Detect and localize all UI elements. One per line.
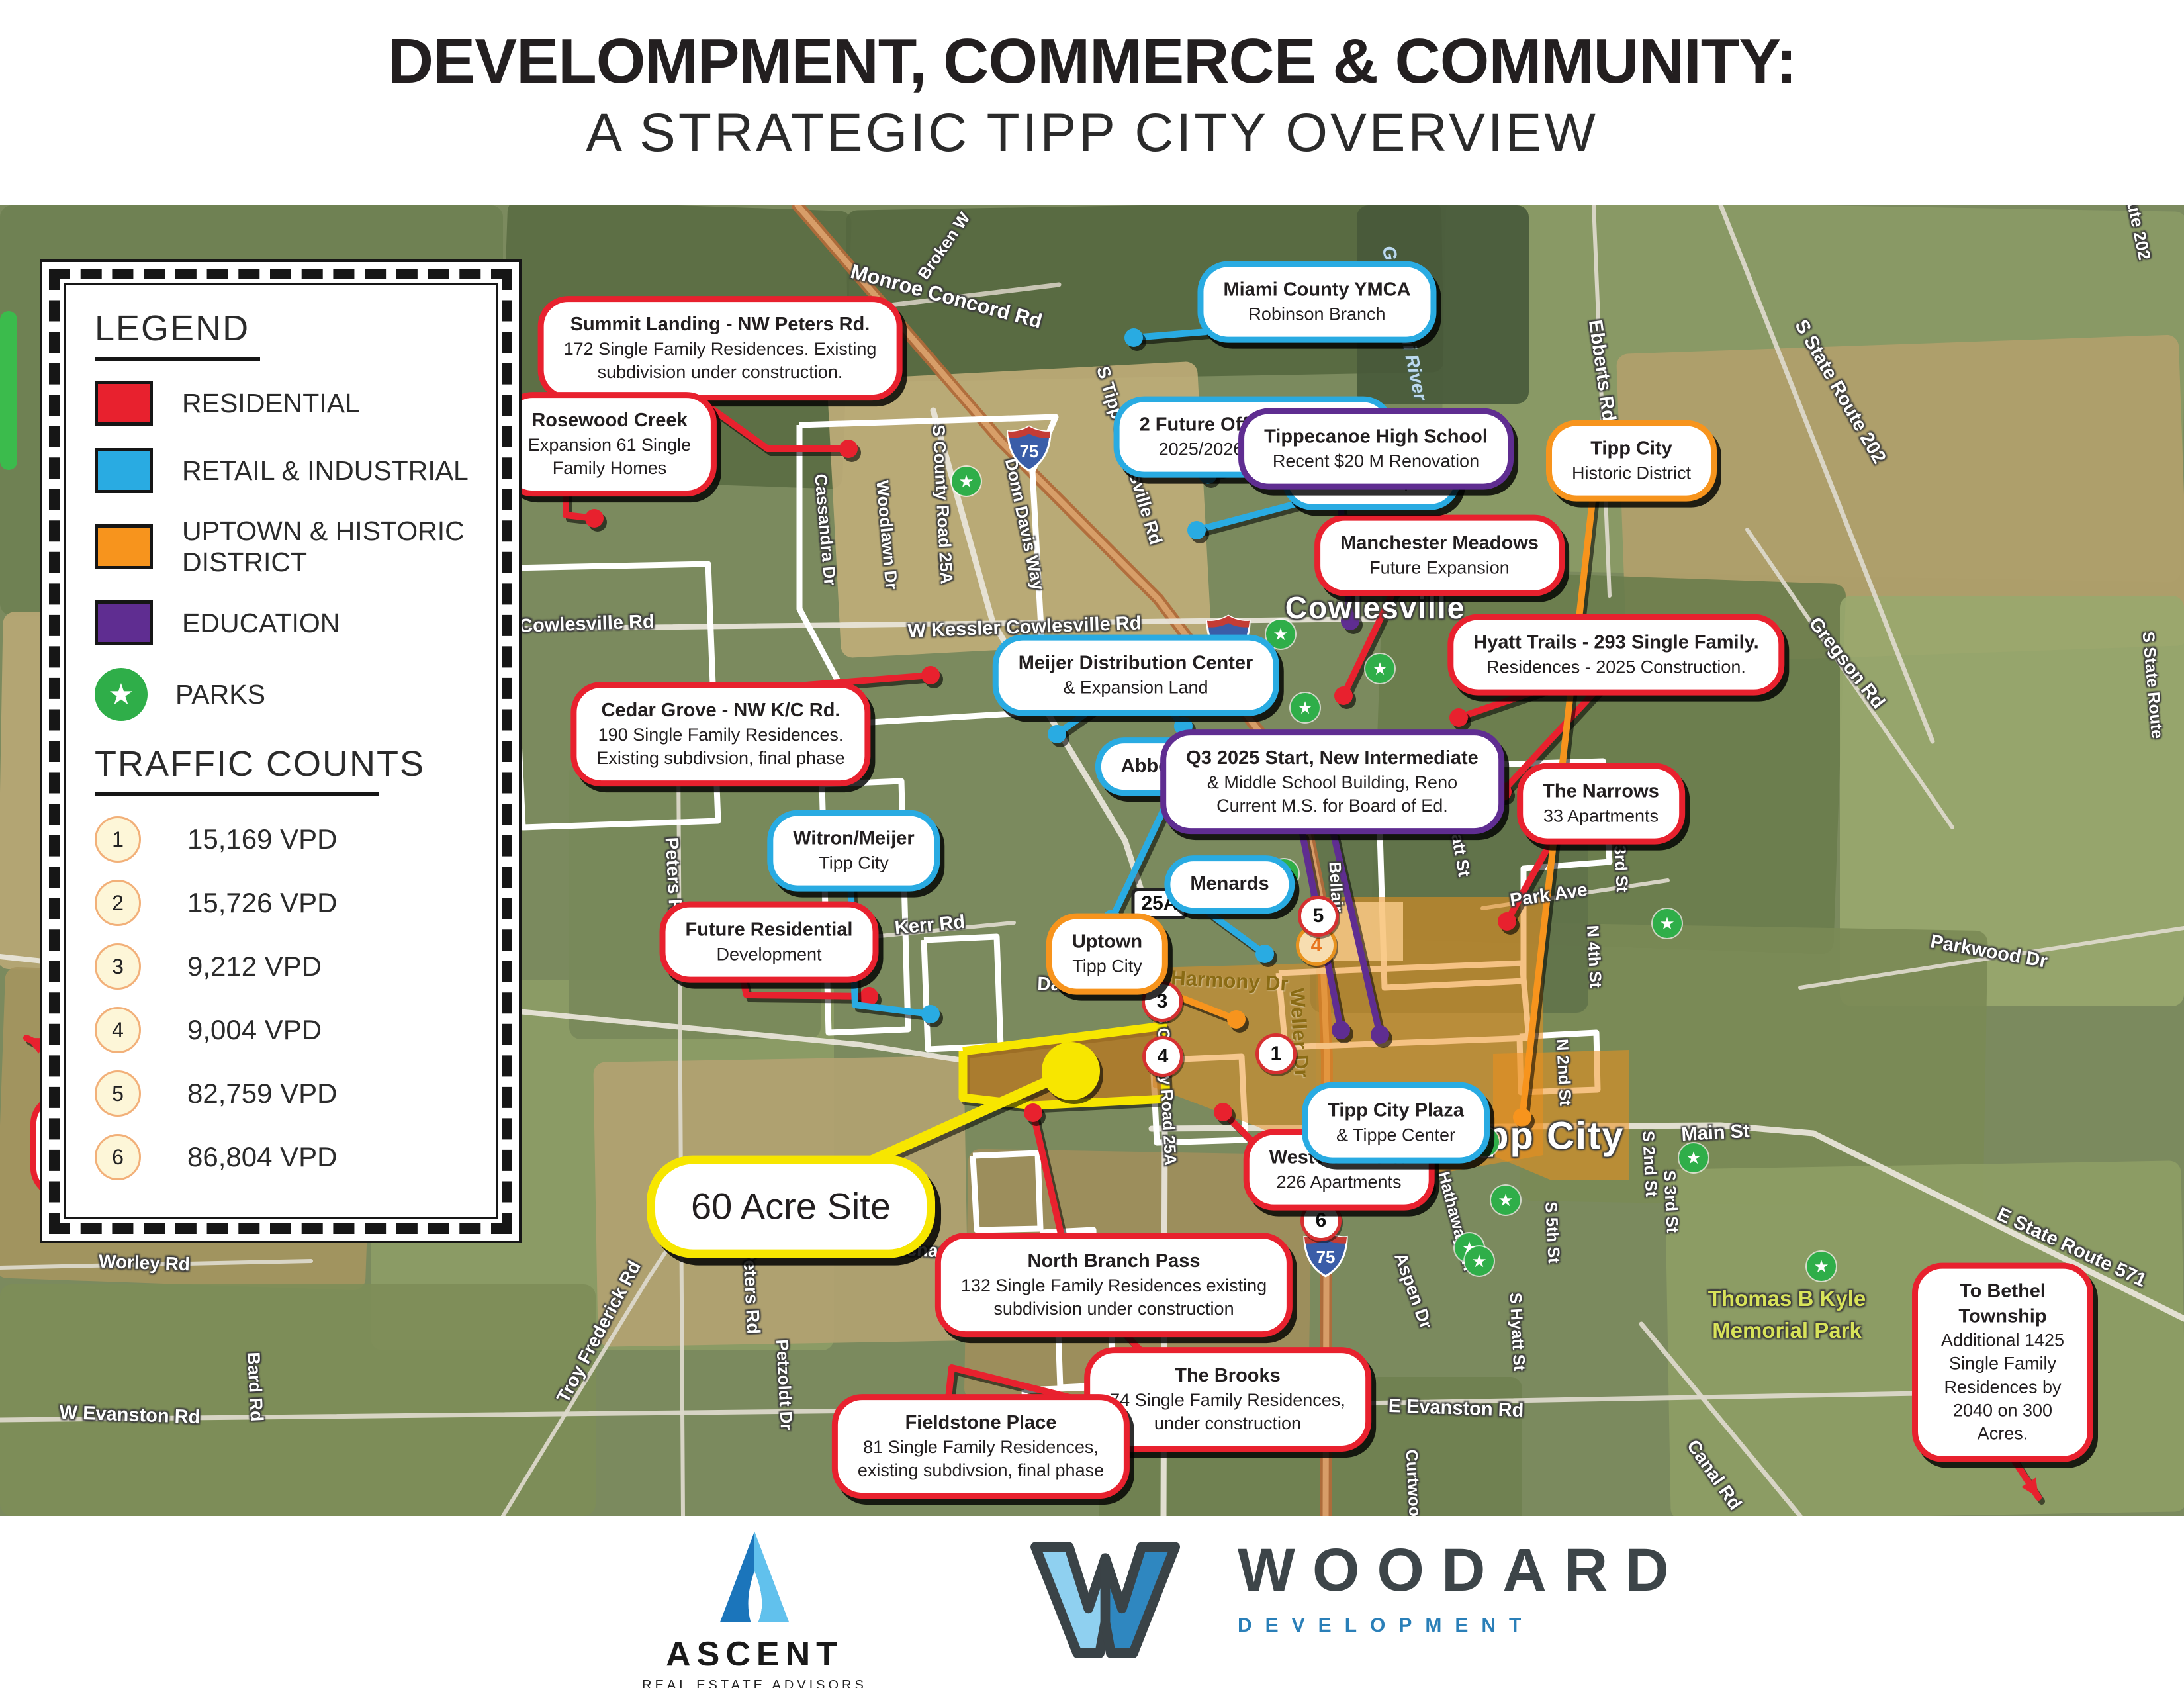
map-label: Worley Rd bbox=[99, 1251, 191, 1276]
legend-title: LEGEND bbox=[95, 308, 469, 349]
map-label: S 5th St bbox=[1541, 1201, 1563, 1264]
park-star-icon: ★ bbox=[952, 467, 981, 496]
callout-witron-meijer: Witron/MeijerTipp City bbox=[767, 810, 940, 892]
page-title: DEVELOMPMENT, COMMERCE & COMMUNITY: bbox=[0, 25, 2184, 98]
legend-item-uptown-historic-district: UPTOWN & HISTORIC DISTRICT bbox=[95, 516, 469, 578]
traffic-count-number: 6 bbox=[95, 1134, 141, 1180]
legend-swatch bbox=[95, 448, 153, 493]
legend-dashed-frame: LEGEND RESIDENTIALRETAIL & INDUSTRIALUPT… bbox=[49, 269, 512, 1234]
traffic-count-number: 2 bbox=[95, 880, 141, 926]
legend-item-retail-industrial: RETAIL & INDUSTRIAL bbox=[95, 448, 469, 493]
interstate-75-shield: 75 bbox=[1005, 424, 1054, 477]
traffic-count-row-2: 215,726 VPD bbox=[95, 880, 469, 926]
park-star-icon: ★ bbox=[1465, 1246, 1494, 1276]
park-star-icon: ★ bbox=[1365, 654, 1394, 683]
traffic-marker-1: 1 bbox=[1255, 1033, 1297, 1074]
callout-manchester-meadows: Manchester MeadowsFuture Expansion bbox=[1314, 515, 1565, 596]
traffic-count-number: 5 bbox=[95, 1070, 141, 1117]
park-star-icon: ★ bbox=[1653, 909, 1682, 938]
map-label: Curtwood bbox=[1401, 1449, 1424, 1516]
callout-uptown-tipp-city: UptownTipp City bbox=[1046, 914, 1168, 995]
callout-bethel-township: To Bethel TownshipAdditional 1425 Single… bbox=[1912, 1263, 2093, 1462]
header: DEVELOMPMENT, COMMERCE & COMMUNITY: A ST… bbox=[0, 19, 2184, 164]
callout-the-narrows: The Narrows33 Apartments bbox=[1517, 763, 1685, 845]
page-subtitle: A STRATEGIC TIPP CITY OVERVIEW bbox=[0, 102, 2184, 164]
legend-item-education: EDUCATION bbox=[95, 600, 469, 645]
traffic-count-row-3: 39,212 VPD bbox=[95, 943, 469, 990]
traffic-count-value: 86,804 VPD bbox=[187, 1141, 338, 1173]
traffic-count-number: 3 bbox=[95, 943, 141, 990]
park-star-icon: ★ bbox=[1679, 1143, 1708, 1172]
callout-north-branch-pass: North Branch Pass132 Single Family Resid… bbox=[935, 1233, 1293, 1337]
traffic-count-row-6: 686,804 VPD bbox=[95, 1134, 469, 1180]
park-star-icon: ★ bbox=[1807, 1252, 1836, 1281]
woodard-tagline: DEVELOPMENT bbox=[1238, 1615, 1686, 1637]
map-label: S Hyatt St bbox=[1505, 1292, 1528, 1371]
traffic-count-row-5: 582,759 VPD bbox=[95, 1070, 469, 1117]
callout-meijer-distribution: Meijer Distribution Center& Expansion La… bbox=[993, 635, 1279, 716]
legend-item-residential: RESIDENTIAL bbox=[95, 381, 469, 426]
legend-swatch bbox=[95, 524, 153, 569]
woodard-logo: WOODARD DEVELOPMENT bbox=[1019, 1536, 1686, 1662]
callout-menards: Menards bbox=[1164, 855, 1295, 914]
callout-tippecanoe-hs: Tippecanoe High SchoolRecent $20 M Renov… bbox=[1238, 408, 1514, 490]
map-label: N 4th St bbox=[1582, 925, 1605, 988]
svg-text:75: 75 bbox=[1020, 443, 1039, 461]
map-label: S 3rd St bbox=[1659, 1170, 1682, 1233]
callout-rosewood-creek: Rosewood CreekExpansion 61 SingleFamily … bbox=[502, 392, 717, 496]
callout-hyatt-trails: Hyatt Trails - 293 Single Family.Residen… bbox=[1447, 614, 1784, 696]
traffic-rule bbox=[95, 792, 379, 796]
ascent-name: ASCENT bbox=[635, 1634, 874, 1674]
traffic-count-number: 4 bbox=[95, 1007, 141, 1053]
map-label: S 2nd St bbox=[1638, 1130, 1661, 1197]
legend-item-parks: ★PARKS bbox=[95, 668, 469, 721]
map-label: N 2nd St bbox=[1552, 1039, 1574, 1107]
legend-label: UPTOWN & HISTORIC DISTRICT bbox=[182, 516, 469, 578]
traffic-count-value: 9,004 VPD bbox=[187, 1014, 322, 1046]
parks-star-icon: ★ bbox=[95, 668, 148, 721]
callout-tipp-city-plaza: Tipp City Plaza& Tippe Center bbox=[1302, 1082, 1490, 1164]
poster-page: DEVELOMPMENT, COMMERCE & COMMUNITY: A ST… bbox=[0, 0, 2184, 1688]
traffic-count-value: 82,759 VPD bbox=[187, 1078, 338, 1109]
map-label: Main St bbox=[1681, 1121, 1751, 1146]
ascent-tagline: REAL ESTATE ADVISORS bbox=[635, 1678, 874, 1688]
ascent-logo: ASCENT REAL ESTATE ADVISORS bbox=[635, 1528, 874, 1688]
legend-label: PARKS bbox=[175, 679, 265, 710]
traffic-marker-4: 4 bbox=[1142, 1036, 1183, 1077]
map-label: Peters Rd bbox=[739, 1247, 764, 1335]
traffic-marker-5: 5 bbox=[1298, 896, 1339, 937]
map-label: Bard Rd bbox=[243, 1352, 267, 1422]
traffic-count-row-1: 115,169 VPD bbox=[95, 816, 469, 863]
traffic-count-number: 1 bbox=[95, 816, 141, 863]
callout-q3-schools: Q3 2025 Start, New Intermediate& Middle … bbox=[1160, 729, 1504, 834]
callout-fieldstone-place: Fieldstone Place81 Single Family Residen… bbox=[832, 1394, 1130, 1499]
legend-rule bbox=[95, 357, 260, 361]
svg-text:75: 75 bbox=[1316, 1248, 1336, 1267]
traffic-count-row-4: 49,004 VPD bbox=[95, 1007, 469, 1053]
traffic-count-value: 9,212 VPD bbox=[187, 951, 322, 982]
traffic-count-value: 15,169 VPD bbox=[187, 823, 338, 855]
legend-box: LEGEND RESIDENTIALRETAIL & INDUSTRIALUPT… bbox=[40, 259, 522, 1243]
callout-miami-county-ymca: Miami County YMCARobinson Branch bbox=[1197, 261, 1436, 343]
callout-site-60-acre: 60 Acre Site bbox=[647, 1156, 935, 1258]
satellite-map: Monroe Concord RdBroken WKessler Cowlesv… bbox=[0, 205, 2184, 1516]
traffic-counts-title: TRAFFIC COUNTS bbox=[95, 743, 469, 784]
park-star-icon: ★ bbox=[1291, 693, 1320, 722]
callout-future-residential: Future ResidentialDevelopment bbox=[660, 902, 879, 983]
callout-cedar-grove: Cedar Grove - NW K/C Rd.190 Single Famil… bbox=[570, 682, 870, 786]
map-label: Thomas B Kyle bbox=[1708, 1286, 1866, 1311]
woodard-name: WOODARD bbox=[1238, 1536, 1686, 1605]
legend-label: RESIDENTIAL bbox=[182, 388, 360, 419]
footer: ASCENT REAL ESTATE ADVISORS WOODARD DEVE… bbox=[0, 1516, 2184, 1688]
woodard-w-icon bbox=[1019, 1536, 1191, 1662]
legend-label: RETAIL & INDUSTRIAL bbox=[182, 455, 469, 487]
traffic-count-value: 15,726 VPD bbox=[187, 887, 338, 919]
park-star-icon: ★ bbox=[1491, 1186, 1520, 1215]
callout-historic-district: Tipp CityHistoric District bbox=[1546, 420, 1717, 502]
callout-summit-landing: Summit Landing - NW Peters Rd.172 Single… bbox=[538, 296, 903, 400]
ascent-triangle-icon bbox=[715, 1528, 794, 1627]
map-label: Memorial Park bbox=[1712, 1318, 1862, 1343]
legend-swatch bbox=[95, 600, 153, 645]
legend-label: EDUCATION bbox=[182, 608, 340, 639]
legend-swatch bbox=[95, 381, 153, 426]
